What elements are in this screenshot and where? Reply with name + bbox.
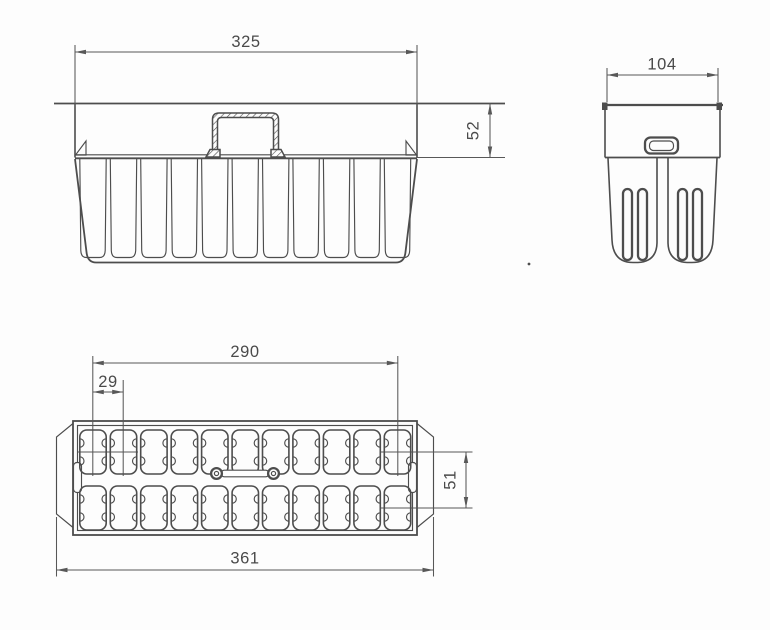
mold-finger — [232, 159, 258, 258]
tray-inner-rim — [78, 426, 413, 531]
arrowhead — [464, 452, 468, 463]
wing-right — [417, 424, 434, 528]
cavity — [232, 486, 258, 530]
handle-eyelet-left — [211, 468, 222, 479]
cavity — [80, 486, 106, 530]
cavity — [263, 486, 289, 530]
dimension-overall-length: 361 — [57, 517, 434, 577]
clip-left — [76, 141, 87, 155]
cavity — [141, 430, 167, 474]
dimension-label: 52 — [465, 121, 483, 141]
cavity-grid — [80, 430, 411, 530]
cavity — [110, 486, 136, 530]
arrowhead — [607, 73, 618, 77]
cavity — [293, 430, 319, 474]
mold-finger — [202, 159, 228, 258]
clip-right — [406, 141, 417, 155]
wing-left — [57, 424, 74, 528]
dimension-label: 104 — [647, 56, 676, 74]
arrowhead — [488, 147, 492, 158]
dimension-cavity-span: 290 — [93, 343, 398, 365]
finger-bundle-outline — [75, 159, 417, 263]
mold-finger — [141, 159, 167, 258]
stray-mark — [528, 263, 531, 266]
cavity — [171, 486, 197, 530]
handle-foot-right — [271, 150, 285, 158]
dimension-label: 361 — [230, 550, 259, 568]
arrowhead — [488, 104, 492, 115]
dimension-front-height: 52 — [417, 104, 505, 158]
thumb-slot-inner — [650, 141, 674, 151]
front-view: 325 52 — [54, 33, 505, 263]
mold-finger — [354, 159, 380, 258]
side-view: 104 — [528, 56, 723, 266]
technical-drawing: 325 52 104 — [0, 0, 770, 630]
dimension-label: 51 — [442, 470, 460, 490]
dimension-label: 290 — [230, 343, 259, 361]
handle-band — [213, 113, 279, 157]
handle-foot-left — [206, 150, 220, 158]
mold-finger — [171, 159, 197, 258]
handle-plan — [211, 468, 279, 479]
notch-right — [409, 463, 417, 493]
arrowhead — [387, 361, 398, 365]
dimension-cavity-pitch: 29 — [93, 373, 123, 394]
mold-fingers — [80, 159, 411, 258]
mold-finger — [263, 159, 289, 258]
cavity — [202, 486, 228, 530]
handle-front — [206, 113, 285, 157]
cavity — [293, 486, 319, 530]
arrowhead — [707, 73, 718, 77]
dimension-label: 325 — [231, 33, 260, 51]
leg-rib-slot — [678, 189, 687, 260]
leg-rib-slots — [623, 189, 702, 260]
cavity — [232, 430, 258, 474]
mold-finger — [80, 159, 106, 258]
arrowhead — [75, 50, 86, 54]
dimension-row-spacing: 51 — [442, 452, 469, 508]
mold-finger — [110, 159, 136, 258]
dimension-label: 29 — [98, 373, 118, 391]
arrowhead — [423, 568, 434, 572]
tray-outline — [73, 421, 417, 535]
mold-finger — [293, 159, 319, 258]
mold-finger — [323, 159, 349, 258]
cavity — [323, 486, 349, 530]
dimension-front-width: 325 — [75, 33, 417, 107]
cavity — [141, 486, 167, 530]
handle-bar — [221, 470, 269, 477]
arrowhead — [406, 50, 417, 54]
cavity — [354, 486, 380, 530]
cavity — [354, 430, 380, 474]
cavity — [171, 430, 197, 474]
plan-view: 290 29 51 361 — [57, 343, 473, 577]
arrowhead — [464, 497, 468, 508]
cavity — [323, 430, 349, 474]
dimension-side-width: 104 — [607, 56, 718, 103]
leg-rib-slot — [693, 189, 702, 260]
leg-rib-slot — [638, 189, 647, 260]
arrowhead — [57, 568, 68, 572]
handle-eyelet-right — [268, 468, 279, 479]
arrowhead — [93, 361, 104, 365]
leg-rib-slot — [623, 189, 632, 260]
